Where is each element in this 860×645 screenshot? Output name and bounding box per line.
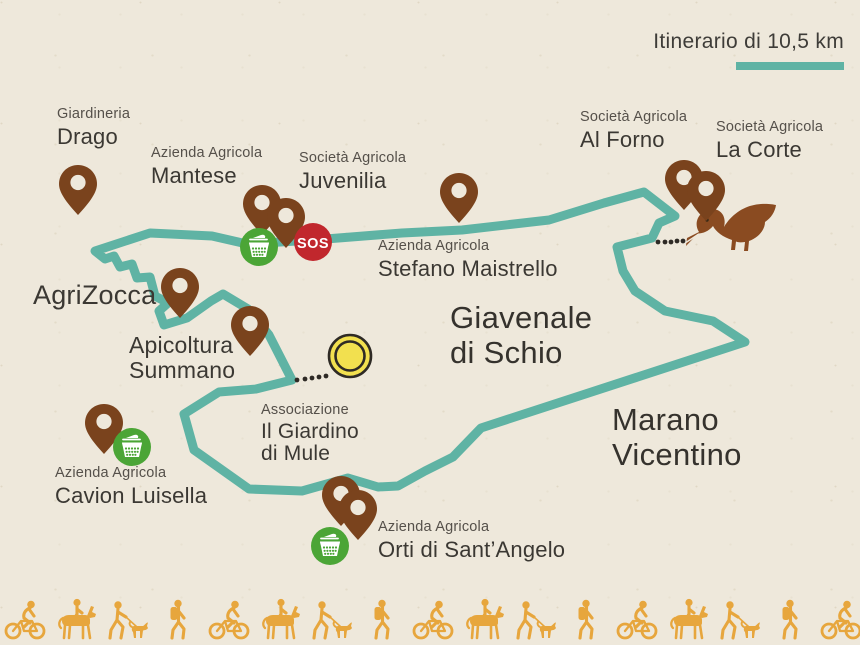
cyclist-icon <box>210 601 248 638</box>
location-label-drago: Giardineria Drago <box>57 107 130 148</box>
label-apicoltura-line1: Apicoltura <box>129 333 235 358</box>
region-giavenale-line2: di Schio <box>450 335 592 370</box>
label-apicoltura-line2: Summano <box>129 358 235 383</box>
hiker-icon <box>579 600 593 638</box>
label-mule-line1: Il Giardino <box>261 421 359 444</box>
label-drago-small: Giardineria <box>57 107 130 123</box>
region-giavenale-line1: Giavenale <box>450 300 592 335</box>
label-orti-large: Orti di Sant’Angelo <box>378 538 565 562</box>
label-juvenilia-large: Juvenilia <box>299 169 406 193</box>
basket-cavion-icon <box>113 428 151 466</box>
region-marano-line1: Marano <box>612 402 742 437</box>
dog-walker-icon <box>110 601 148 638</box>
itinerary-title: Itinerario di 10,5 km <box>653 30 844 54</box>
itinerary-title-block: Itinerario di 10,5 km <box>653 30 844 70</box>
hiker-icon <box>783 600 797 638</box>
duck-connector-dots <box>656 239 686 245</box>
pin-maistrello-icon <box>440 173 478 223</box>
label-cavion-small: Azienda Agricola <box>55 466 207 482</box>
pin-apicoltura-icon <box>231 306 269 356</box>
horse-rider-icon <box>467 599 504 638</box>
title-underline-bar <box>736 62 844 70</box>
cyclist-icon <box>414 601 452 638</box>
location-label-cavion: Azienda Agricola Cavion Luisella <box>55 466 207 507</box>
horse-rider-icon <box>671 599 708 638</box>
cyclist-icon <box>822 601 860 638</box>
label-cavion-large: Cavion Luisella <box>55 484 207 508</box>
label-maistrello-large: Stefano Maistrello <box>378 257 558 281</box>
location-label-mule: Associazione Il Giardino di Mule <box>261 403 359 466</box>
label-alforno-small: Società Agricola <box>580 110 687 126</box>
basket-orti-icon <box>311 527 349 565</box>
sos-badge: SOS <box>294 223 332 261</box>
label-mule-small: Associazione <box>261 403 359 419</box>
label-mule-line2: di Mule <box>261 443 359 466</box>
hiker-icon <box>171 600 185 638</box>
label-agrizocca-large: AgriZocca <box>33 281 156 310</box>
dog-walker-icon <box>518 601 556 638</box>
activity-border-row <box>0 595 860 645</box>
pin-orti-icon <box>339 490 377 540</box>
dog-walker-icon <box>722 601 760 638</box>
start-connector-dots <box>295 374 329 383</box>
label-lacorte-small: Società Agricola <box>716 120 823 136</box>
location-label-mantese: Azienda Agricola Mantese <box>151 146 262 187</box>
label-lacorte-large: La Corte <box>716 138 823 162</box>
label-orti-small: Azienda Agricola <box>378 520 565 536</box>
cyclist-icon <box>6 601 44 638</box>
sos-badge-text: SOS <box>297 236 329 252</box>
location-label-alforno: Società Agricola Al Forno <box>580 110 687 151</box>
location-label-agrizocca: AgriZocca <box>33 281 156 310</box>
dog-walker-icon <box>314 601 352 638</box>
map-canvas: SOS Itinerario di 10,5 km Giardineria Dr… <box>0 0 860 645</box>
label-alforno-large: Al Forno <box>580 128 687 152</box>
region-marano-line2: Vicentino <box>612 437 742 472</box>
region-label-marano: Marano Vicentino <box>612 402 742 472</box>
label-mantese-large: Mantese <box>151 164 262 188</box>
location-label-lacorte: Società Agricola La Corte <box>716 120 823 161</box>
label-juvenilia-small: Società Agricola <box>299 151 406 167</box>
location-label-apicoltura: Apicoltura Summano <box>129 333 235 383</box>
label-drago-large: Drago <box>57 125 130 149</box>
cyclist-icon <box>618 601 656 638</box>
region-label-giavenale: Giavenale di Schio <box>450 300 592 370</box>
label-mantese-small: Azienda Agricola <box>151 146 262 162</box>
location-label-maistrello: Azienda Agricola Stefano Maistrello <box>378 239 558 280</box>
basket-mantese-icon <box>240 228 278 266</box>
label-maistrello-small: Azienda Agricola <box>378 239 558 255</box>
location-label-orti: Azienda Agricola Orti di Sant’Angelo <box>378 520 565 561</box>
horse-rider-icon <box>263 599 300 638</box>
horse-rider-icon <box>59 599 96 638</box>
pin-drago-icon <box>59 165 97 215</box>
start-point-icon <box>329 335 371 377</box>
hiker-icon <box>375 600 389 638</box>
location-label-juvenilia: Società Agricola Juvenilia <box>299 151 406 192</box>
